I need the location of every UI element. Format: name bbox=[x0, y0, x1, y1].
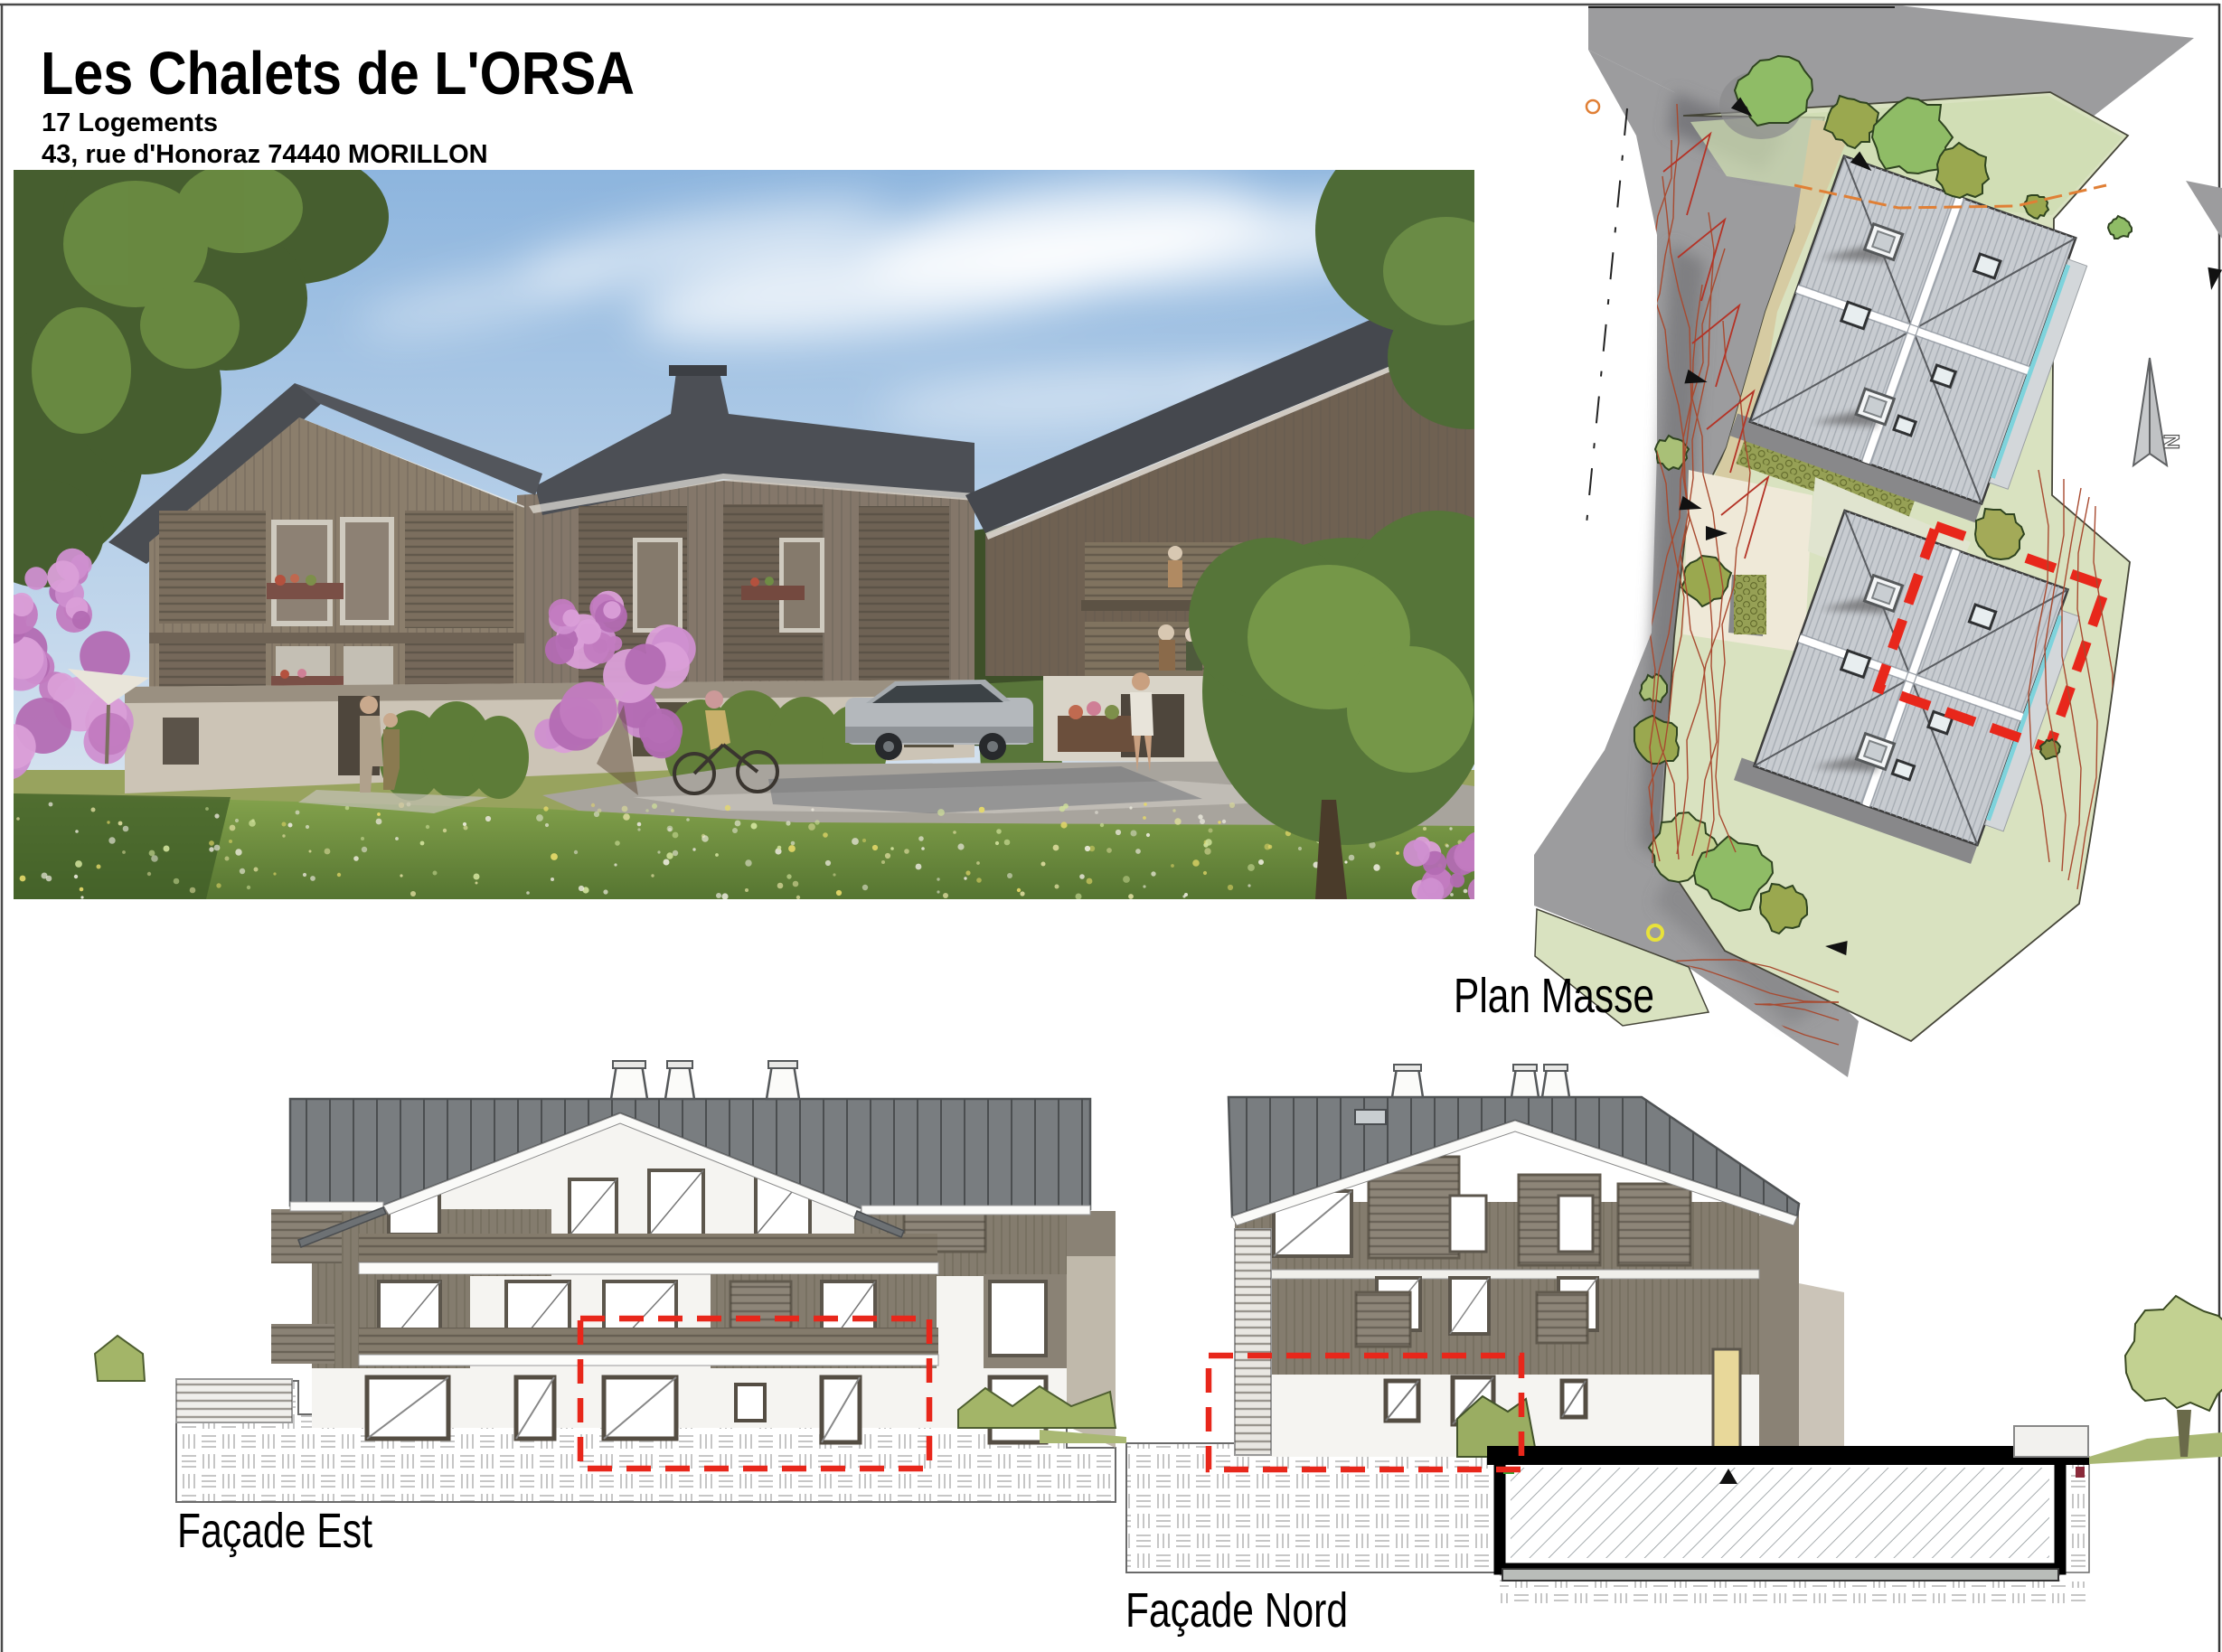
svg-text:Les Chalets de L'ORSA: Les Chalets de L'ORSA bbox=[41, 40, 635, 108]
svg-text:Plan Masse: Plan Masse bbox=[1454, 969, 1654, 1023]
svg-text:N: N bbox=[2159, 434, 2183, 449]
svg-text:Façade Est: Façade Est bbox=[177, 1504, 372, 1558]
svg-text:Façade Nord: Façade Nord bbox=[1125, 1583, 1348, 1638]
svg-text:17 Logements: 17 Logements bbox=[42, 108, 218, 137]
svg-text:43, rue d'Honoraz 74440 MORILL: 43, rue d'Honoraz 74440 MORILLON bbox=[42, 140, 488, 169]
